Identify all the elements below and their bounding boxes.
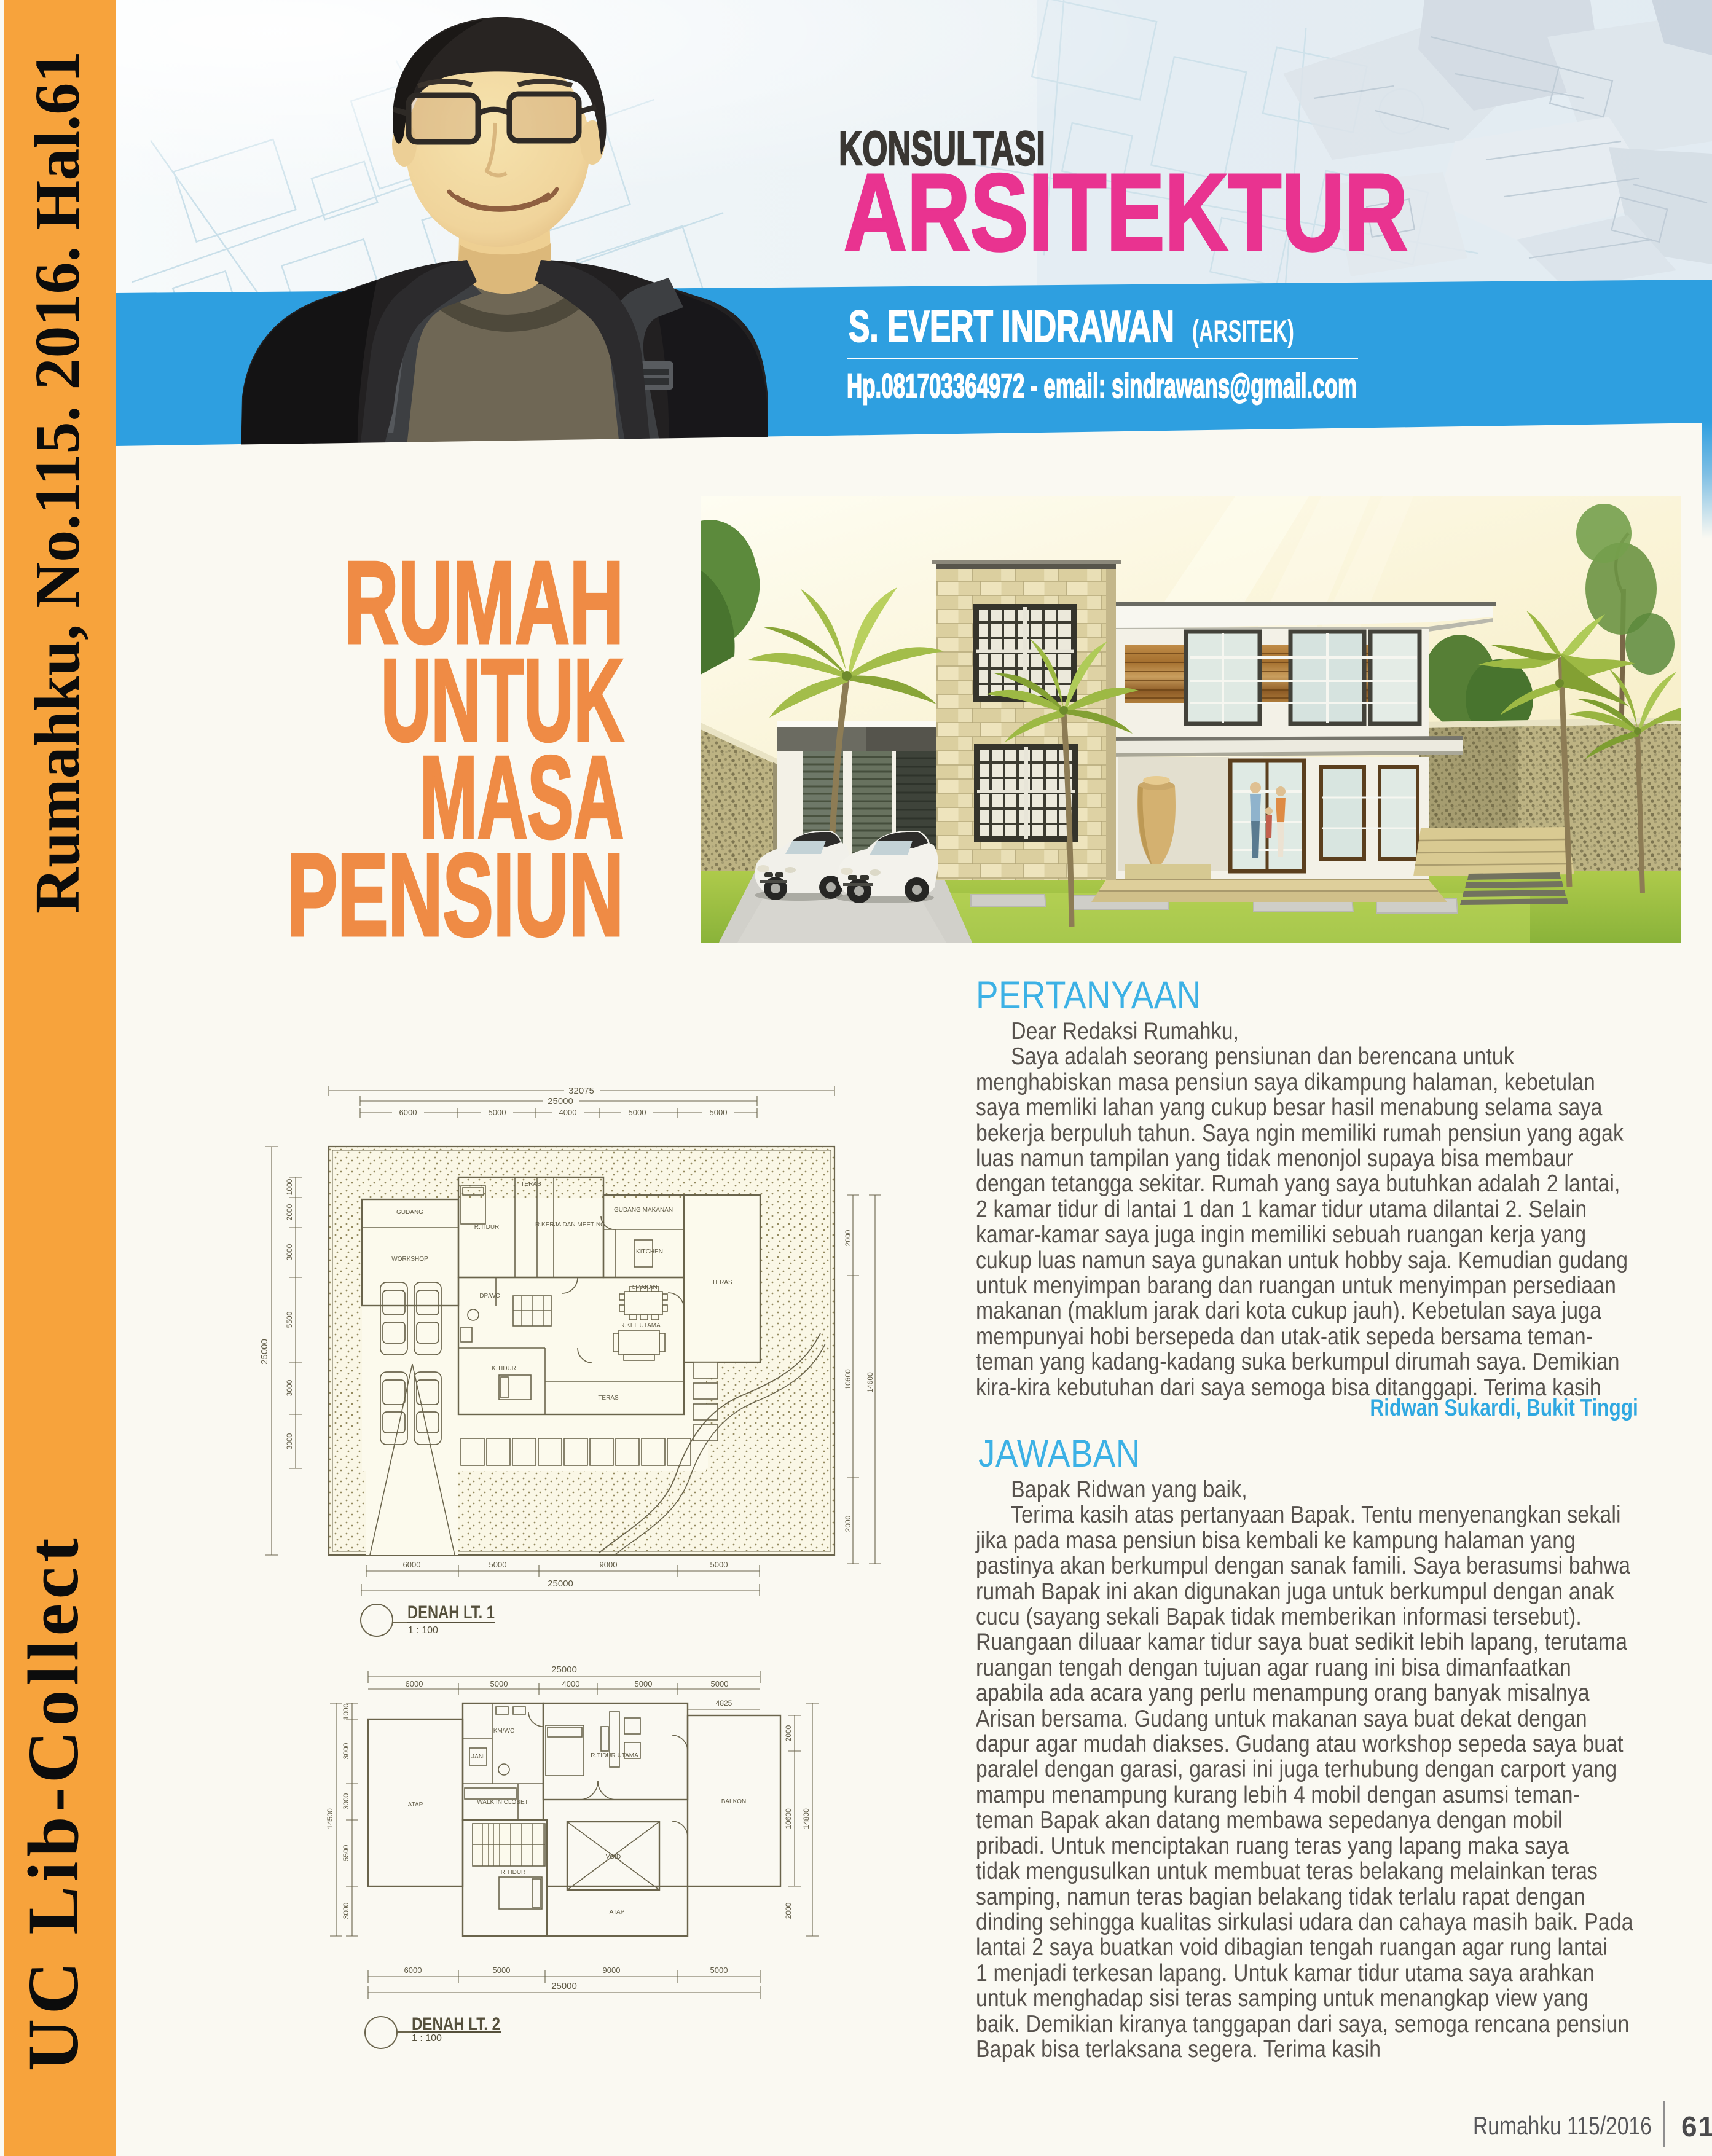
svg-text:WALK IN CLOSET: WALK IN CLOSET — [477, 1799, 528, 1806]
svg-text:TERAS: TERAS — [598, 1395, 619, 1401]
svg-text:Hp.081703364972 - email: sindr: Hp.081703364972 - email: sindrawans@gmai… — [847, 366, 1357, 405]
svg-text:1000: 1000 — [285, 1178, 294, 1195]
svg-text:10600: 10600 — [784, 1808, 793, 1829]
svg-text:6000: 6000 — [404, 1966, 422, 1975]
svg-text:6000: 6000 — [406, 1679, 423, 1688]
svg-text:5000: 5000 — [493, 1966, 511, 1975]
svg-text:25000: 25000 — [551, 1664, 577, 1675]
svg-text:5500: 5500 — [342, 1844, 350, 1861]
svg-text:2000: 2000 — [784, 1725, 793, 1741]
svg-text:5000: 5000 — [635, 1679, 653, 1688]
svg-text:ATAP: ATAP — [610, 1909, 625, 1916]
svg-text:14800: 14800 — [802, 1808, 811, 1829]
svg-text:DENAH LT. 1: DENAH LT. 1 — [407, 1602, 495, 1623]
svg-text:6000: 6000 — [403, 1560, 421, 1569]
svg-text:14500: 14500 — [326, 1808, 334, 1829]
svg-text:2000: 2000 — [285, 1204, 294, 1220]
svg-text:5000: 5000 — [710, 1560, 728, 1569]
svg-text:4825: 4825 — [716, 1699, 732, 1707]
svg-text:2000: 2000 — [784, 1902, 793, 1919]
svg-text:KM/WC: KM/WC — [493, 1728, 514, 1735]
svg-text:25000: 25000 — [548, 1096, 573, 1107]
svg-text:3000: 3000 — [342, 1793, 350, 1809]
svg-text:3000: 3000 — [285, 1379, 294, 1396]
svg-text:1 : 100: 1 : 100 — [408, 1625, 438, 1636]
svg-text:1 : 100: 1 : 100 — [412, 2033, 442, 2044]
svg-text:R.TIDUR UTAMA: R.TIDUR UTAMA — [591, 1752, 638, 1759]
svg-text:5000: 5000 — [710, 1966, 728, 1975]
svg-text:14600: 14600 — [866, 1372, 874, 1393]
svg-text:BALKON: BALKON — [721, 1798, 747, 1805]
svg-text:3000: 3000 — [285, 1433, 294, 1449]
svg-text:5000: 5000 — [489, 1108, 506, 1117]
svg-text:ARSITEKTUR: ARSITEKTUR — [844, 151, 1408, 273]
svg-text:5000: 5000 — [710, 1108, 728, 1117]
svg-text:1000: 1000 — [342, 1703, 350, 1720]
svg-text:4000: 4000 — [562, 1679, 580, 1688]
svg-text:KITCHEN: KITCHEN — [636, 1249, 663, 1255]
svg-text:S. EVERT INDRAWAN: S. EVERT INDRAWAN — [849, 302, 1174, 351]
svg-text:4000: 4000 — [559, 1108, 577, 1117]
svg-text:TERAS: TERAS — [712, 1279, 732, 1286]
svg-text:WORKSHOP: WORKSHOP — [391, 1256, 428, 1263]
svg-text:R.MAKAN: R.MAKAN — [629, 1284, 658, 1291]
svg-text:GUDANG: GUDANG — [396, 1209, 423, 1216]
svg-text:R.KEL UTAMA: R.KEL UTAMA — [620, 1322, 661, 1329]
svg-text:2000: 2000 — [844, 1515, 852, 1532]
svg-text:(ARSITEK): (ARSITEK) — [1192, 314, 1294, 348]
svg-text:R.TIDUR: R.TIDUR — [501, 1869, 526, 1876]
svg-text:5000: 5000 — [629, 1108, 646, 1117]
svg-text:9000: 9000 — [600, 1560, 618, 1569]
svg-text:32075: 32075 — [568, 1086, 594, 1096]
svg-text:9000: 9000 — [603, 1966, 621, 1975]
svg-text:VOID: VOID — [606, 1854, 621, 1860]
svg-text:25000: 25000 — [551, 1981, 577, 1991]
svg-text:6000: 6000 — [399, 1108, 417, 1117]
svg-text:5000: 5000 — [490, 1679, 508, 1688]
svg-text:5500: 5500 — [285, 1311, 294, 1328]
svg-text:3000: 3000 — [285, 1244, 294, 1260]
svg-text:PENSIUN: PENSIUN — [287, 830, 624, 960]
svg-text:R.TIDUR: R.TIDUR — [474, 1224, 500, 1231]
svg-text:K.TIDUR: K.TIDUR — [492, 1365, 516, 1372]
svg-text:GUDANG MAKANAN: GUDANG MAKANAN — [614, 1207, 673, 1213]
svg-text:JANI: JANI — [471, 1754, 485, 1760]
svg-text:DP/WC: DP/WC — [479, 1293, 500, 1299]
svg-text:2000: 2000 — [844, 1229, 852, 1246]
svg-text:25000: 25000 — [548, 1578, 573, 1589]
svg-text:ATAP: ATAP — [408, 1801, 423, 1808]
svg-text:5000: 5000 — [489, 1560, 507, 1569]
svg-text:3000: 3000 — [342, 1902, 350, 1919]
svg-text:3000: 3000 — [342, 1742, 350, 1759]
svg-text:25000: 25000 — [259, 1339, 270, 1365]
svg-text:5000: 5000 — [711, 1679, 729, 1688]
svg-text:TERAS: TERAS — [520, 1181, 541, 1188]
svg-text:10600: 10600 — [844, 1369, 852, 1390]
svg-text:R.KERJA DAN MEETING: R.KERJA DAN MEETING — [535, 1221, 605, 1228]
